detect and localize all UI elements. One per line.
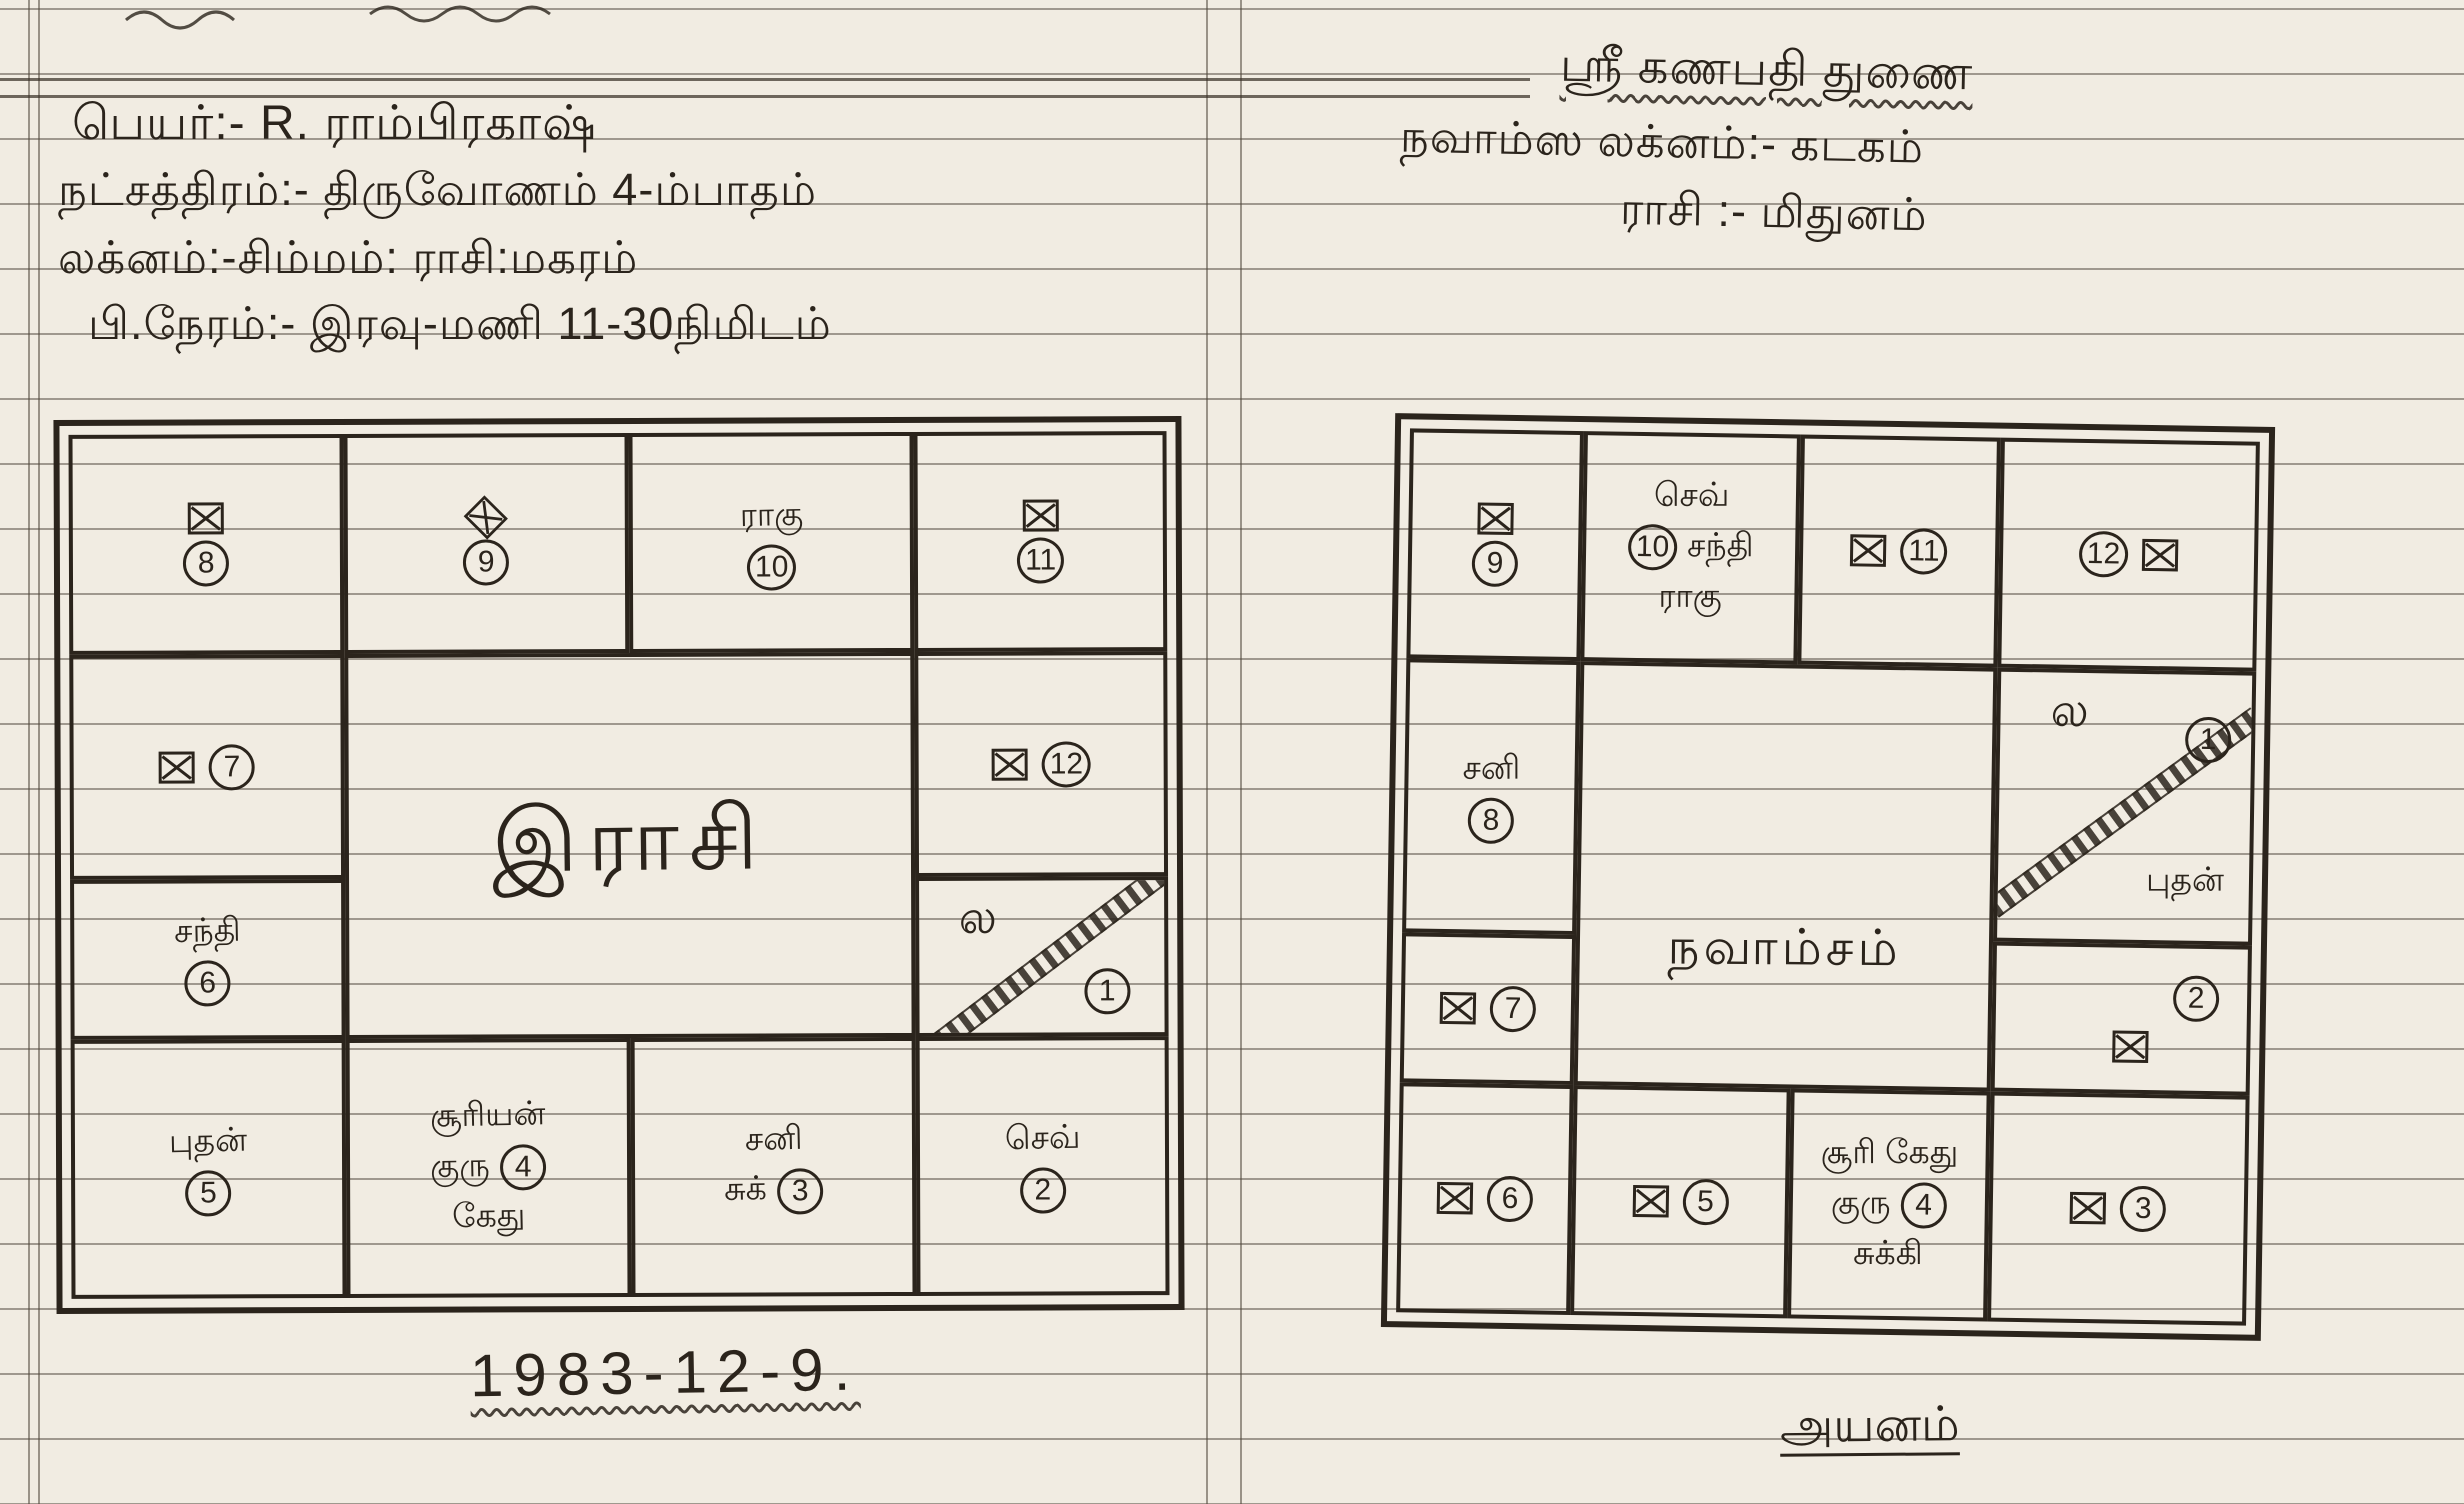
planet-label: புதன் [169,1120,248,1165]
rasi-house-4: சூரியன் குரு 4 கேது [345,1038,631,1298]
house-number: 10 [1627,524,1677,571]
navamsa-house-3: 3 [1987,1092,2250,1326]
birth-date: 1983-12-9. [469,1335,860,1411]
lagna-letter: ல [2050,683,2089,745]
cross-mark-icon [2142,539,2178,572]
navamsa-house-1-lagna: ல 1 புதன் [1993,667,2257,945]
house-number: 8 [183,541,229,587]
rasi-house-12: 12 [915,651,1168,877]
cross-mark-icon [992,748,1028,780]
house-number: 1 [2185,717,2232,764]
rasi-house-2: செவ் 2 [916,1036,1169,1296]
page-top-squiggle-mark [120,0,680,34]
cross-mark-icon [1437,1182,1473,1215]
lagna-letter: ல [959,890,997,951]
planet-label: சுக் [724,1169,768,1213]
cross-mark-icon [2070,1192,2106,1225]
house-number: 12 [2078,531,2128,578]
rasi-house-3: சனி சுக் 3 [631,1037,917,1297]
rasi-house-10: ராகு 10 [628,432,914,653]
planet-label: சூரியன் [430,1095,547,1140]
navamsa-house-8: சனி 8 [1402,658,1581,935]
lagna-hatch-icon [915,876,1168,1037]
navamsa-house-5: 5 [1570,1085,1790,1318]
planet-label: குரு [1831,1183,1891,1226]
planet-label: சனி [744,1119,803,1163]
cross-mark-icon [159,751,195,783]
planet-label: ராகு [739,494,803,538]
house-number: 5 [185,1170,231,1216]
house-number: 1 [1084,968,1130,1014]
rasi-house-9: 9 [343,433,629,654]
navamsa-chart-grid: 9 செவ் 10 சந்தி ராகு 11 12 சனி 8 நவாம்சம… [1396,428,2260,1325]
cross-mark-icon [2112,1030,2148,1063]
navamsa-house-4: சூரி கேது குரு 4 சுக்கி [1787,1089,1990,1322]
cross-mark-diamond-icon [464,496,508,540]
star-line: நட்சத்திரம்:- திருவோணம் 4-ம்பாதம் [58,164,817,222]
house-number: 5 [1682,1179,1729,1226]
navamsa-house-6: 6 [1396,1082,1574,1315]
rasi-house-7: 7 [69,654,344,880]
house-number: 7 [1490,986,1537,1033]
rasi-house-1-lagna: ல 1 [915,876,1168,1037]
planet-number-pair: குரு 4 [1831,1181,1947,1229]
cross-mark-icon [188,503,224,535]
center-binding-line-2 [1240,0,1242,1504]
navamsa-house-11: 11 [1797,435,2000,668]
cross-mark-icon [1632,1185,1668,1218]
left-margin-line [28,0,30,1504]
house-number: 9 [1472,540,1519,587]
cross-mark-icon [1440,992,1476,1025]
house-number: 3 [777,1168,823,1214]
house-number: 7 [209,744,255,790]
house-number: 6 [1487,1176,1534,1223]
planet-label: சந்தி [174,911,241,955]
lagnam-rasi-line: லக்னம்:-சிம்மம்: ராசி:மகரம் [58,232,638,290]
navamsa-rasi-line: ராசி :- மிதுனம் [1619,183,1928,247]
planet-label: சனி [1463,749,1521,792]
planet-label: சுக்கி [1853,1234,1923,1277]
navamsa-house-9: 9 [1406,428,1584,661]
planet-label: கேது [451,1196,525,1241]
cross-mark-icon [1850,534,1886,567]
rasi-house-8: 8 [68,434,343,655]
left-margin-line-2 [38,0,40,1504]
name-line: பெயர்:- R. ராம்பிரகாஷ் [72,96,597,157]
house-number: 11 [1017,538,1064,584]
cross-mark-icon [1022,500,1058,532]
invocation-title: ஸ்ரீ கணபதி துணை [1559,38,1973,108]
navamsa-lagnam-line: நவாம்ஸ லக்னம்:- கடகம் [1399,111,1924,180]
rasi-chart-grid: 8 9 ராகு 10 11 7 இராசி 12 சந்தி 6 [68,431,1169,1299]
house-number: 9 [463,540,509,586]
rasi-house-11: 11 [914,431,1167,652]
house-number: 11 [1900,528,1948,575]
house-number: 3 [2120,1186,2167,1233]
planet-label: ராகு [1658,577,1721,620]
rasi-chart-center: இராசி [344,652,916,1038]
planet-label: சூரி கேது [1821,1133,1959,1176]
navamsa-chart-center: நவாம்சம் [1574,661,1997,1092]
planet-label: குரு [430,1146,491,1190]
rasi-house-5: புதன் 5 [71,1039,346,1299]
house-number: 10 [747,544,797,590]
planet-label: சந்தி [1687,527,1754,570]
house-number: 8 [1468,798,1515,845]
center-binding-line [1206,0,1208,1504]
heavy-rule-line [0,78,1530,81]
birth-time-line: பி.நேரம்:- இரவு-மணி 11-30நிமிடம் [88,298,832,356]
house-number: 2 [1020,1167,1066,1213]
rasi-house-6: சந்தி 6 [70,879,345,1040]
navamsa-house-10: செவ் 10 சந்தி ராகு [1581,431,1801,664]
rasi-chart: 8 9 ராகு 10 11 7 இராசி 12 சந்தி 6 [53,416,1184,1314]
house-number: 4 [500,1145,546,1191]
planet-label: செவ் [1004,1118,1080,1163]
navamsa-chart: 9 செவ் 10 சந்தி ராகு 11 12 சனி 8 நவாம்சம… [1381,413,2275,1341]
planet-label: செவ் [1654,476,1730,519]
planet-number-pair: சுக் 3 [724,1168,823,1214]
chart-title: இராசி [491,787,768,904]
cross-mark-icon [1477,502,1513,535]
navamsa-house-12: 12 [1997,438,2260,672]
footer-word: அயனம் [1780,1397,1960,1460]
house-number: 6 [185,961,231,1007]
house-number: 12 [1042,741,1092,787]
navamsa-house-7: 7 [1400,932,1577,1085]
planet-number-pair: 10 சந்தி [1627,524,1754,572]
planet-label: புதன் [2146,860,2224,903]
planet-number-pair: குரு 4 [430,1145,546,1191]
house-number: 2 [2173,975,2220,1022]
navamsa-house-2: 2 [1990,941,2252,1095]
house-number: 4 [1900,1182,1947,1229]
chart-title: நவாம்சம் [1668,768,1904,985]
